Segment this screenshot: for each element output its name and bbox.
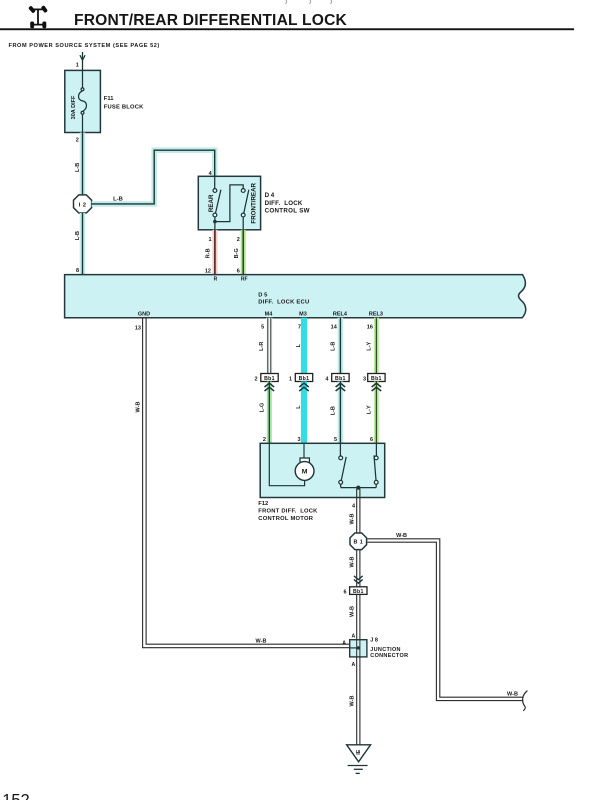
svg-text:W-B: W-B [349,557,355,568]
svg-text:J 8: J 8 [370,637,378,643]
svg-text:A: A [342,640,346,646]
svg-text:IE: IE [356,749,362,754]
svg-text:FRONT DIFF. LOCK: FRONT DIFF. LOCK [258,509,318,515]
svg-text:CONTROL SW: CONTROL SW [265,208,310,215]
svg-text:A: A [351,634,355,640]
svg-text:R: R [214,277,218,283]
svg-text:6: 6 [370,437,373,443]
svg-text:14: 14 [331,324,338,330]
svg-text:16: 16 [367,324,373,330]
svg-text:2: 2 [254,376,257,382]
svg-text:13: 13 [135,326,141,332]
svg-text:M3: M3 [299,311,307,317]
svg-text:3: 3 [363,376,366,382]
svg-text:W-B: W-B [135,402,141,413]
svg-text:2: 2 [237,237,240,243]
svg-text:L-Y: L-Y [366,342,372,351]
svg-text:RF: RF [241,277,248,283]
svg-text:REL4: REL4 [333,311,348,317]
svg-text:5: 5 [334,437,337,443]
svg-text:30A DIFF: 30A DIFF [71,95,77,119]
svg-text:CONTROL MOTOR: CONTROL MOTOR [258,516,313,522]
svg-text:6: 6 [237,268,240,274]
svg-text:W-B: W-B [349,514,355,525]
svg-text:W-B: W-B [349,696,355,707]
svg-text:GND: GND [138,311,150,317]
svg-text:M4: M4 [265,311,274,317]
svg-text:DIFF. LOCK ECU: DIFF. LOCK ECU [258,300,309,306]
svg-text:7: 7 [298,324,301,330]
svg-text:Bb1: Bb1 [371,376,382,382]
svg-text:1: 1 [76,63,79,69]
svg-text:Bb1: Bb1 [335,376,346,382]
svg-text:DIFF. LOCK: DIFF. LOCK [265,200,303,207]
svg-text:3: 3 [298,437,301,443]
svg-text:1: 1 [208,237,211,243]
svg-text:W-B: W-B [396,533,407,539]
svg-text:W-B: W-B [507,692,518,698]
svg-text:Bb1: Bb1 [353,589,364,595]
svg-text:2: 2 [76,138,79,144]
svg-text:L-B: L-B [113,197,123,203]
svg-text:FRONT/REAR: FRONT/REAR [251,182,258,223]
svg-text:I 2: I 2 [79,202,87,208]
svg-text:B 1: B 1 [354,539,364,545]
svg-text:6: 6 [343,590,346,596]
svg-text:FRONT/REAR DIFFERENTIAL LOCK: FRONT/REAR DIFFERENTIAL LOCK [74,12,348,29]
svg-text:Bb1: Bb1 [264,376,275,382]
svg-text:L-B: L-B [331,406,337,415]
svg-text:M: M [302,469,308,476]
svg-text:CONNECTOR: CONNECTOR [370,653,408,659]
svg-text:FROM POWER SOURCE SYSTEM (SEE: FROM POWER SOURCE SYSTEM (SEE PAGE 52) [9,43,160,49]
svg-text:5: 5 [261,324,264,330]
svg-text:B-G: B-G [234,248,240,258]
svg-text:2: 2 [263,437,266,443]
svg-text:FUSE BLOCK: FUSE BLOCK [104,105,144,111]
svg-text:8: 8 [76,268,79,274]
svg-text:W-B: W-B [256,638,267,644]
svg-text:12: 12 [205,268,211,274]
svg-text:1: 1 [289,376,292,382]
svg-text:A: A [351,662,355,668]
svg-text:L-Y: L-Y [366,405,372,414]
svg-text:REL3: REL3 [369,311,383,317]
svg-text:D 4: D 4 [265,192,275,199]
svg-text:L-G: L-G [259,403,265,412]
svg-text:JUNCTION: JUNCTION [370,647,401,653]
svg-text:R-B: R-B [206,248,212,258]
svg-text:D 5: D 5 [258,292,268,298]
svg-text:L-B: L-B [331,342,337,351]
svg-text:Bb1: Bb1 [299,376,310,382]
svg-text:REAR: REAR [208,194,215,212]
svg-text:F12: F12 [258,501,268,507]
svg-text:L-B: L-B [75,231,81,240]
svg-text:F11: F11 [104,96,114,102]
svg-text:152: 152 [2,792,30,800]
svg-text:W-B: W-B [349,606,355,617]
svg-text:L-B: L-B [75,163,81,172]
svg-text:L-R: L-R [259,342,265,351]
